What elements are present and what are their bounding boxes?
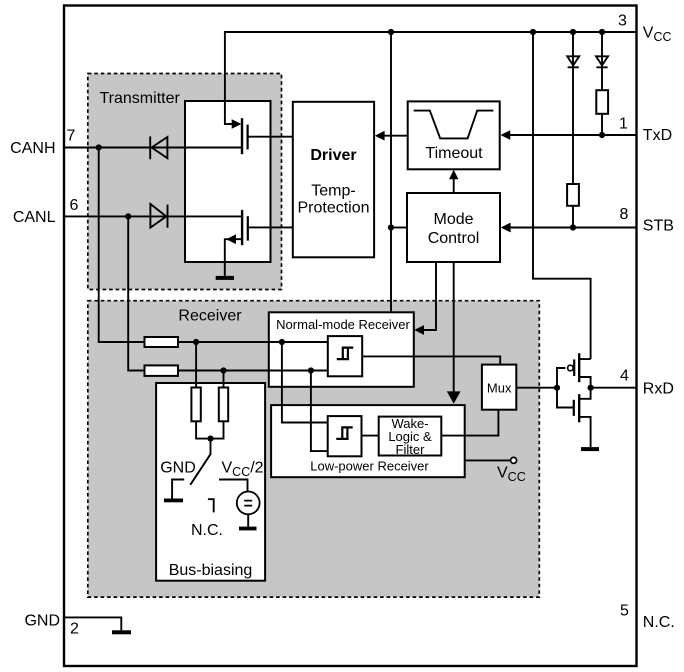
- svg-text:Timeout: Timeout: [425, 145, 483, 162]
- svg-text:7: 7: [67, 128, 76, 145]
- svg-text:3: 3: [618, 13, 627, 30]
- svg-text:N.C.: N.C.: [191, 522, 223, 539]
- svg-text:Protection: Protection: [297, 200, 369, 217]
- svg-text:Receiver: Receiver: [178, 308, 242, 325]
- svg-text:GND: GND: [160, 460, 196, 477]
- svg-text:N.C.: N.C.: [643, 614, 675, 631]
- svg-text:Low-power Receiver: Low-power Receiver: [310, 459, 429, 474]
- svg-text:4: 4: [620, 368, 629, 385]
- svg-text:2: 2: [70, 621, 79, 638]
- svg-text:CANL: CANL: [13, 209, 56, 226]
- svg-text:Control: Control: [428, 230, 480, 247]
- svg-text:Normal-mode Receiver: Normal-mode Receiver: [276, 317, 410, 332]
- svg-text:8: 8: [620, 206, 629, 223]
- svg-text:Mode: Mode: [433, 211, 473, 228]
- svg-text:Filter: Filter: [396, 442, 426, 457]
- svg-text:Bus-biasing: Bus-biasing: [169, 562, 253, 579]
- svg-text:Temp-: Temp-: [311, 183, 355, 200]
- svg-text:CANH: CANH: [10, 140, 55, 157]
- svg-text:6: 6: [70, 197, 79, 214]
- svg-text:5: 5: [620, 603, 629, 620]
- svg-text:Driver: Driver: [310, 147, 356, 164]
- svg-text:GND: GND: [24, 613, 60, 630]
- svg-text:RxD: RxD: [643, 381, 674, 398]
- svg-text:Mux: Mux: [487, 380, 512, 395]
- svg-text:1: 1: [619, 116, 628, 133]
- svg-text:Transmitter: Transmitter: [100, 90, 181, 107]
- svg-text:TxD: TxD: [643, 127, 672, 144]
- svg-text:STB: STB: [643, 218, 674, 235]
